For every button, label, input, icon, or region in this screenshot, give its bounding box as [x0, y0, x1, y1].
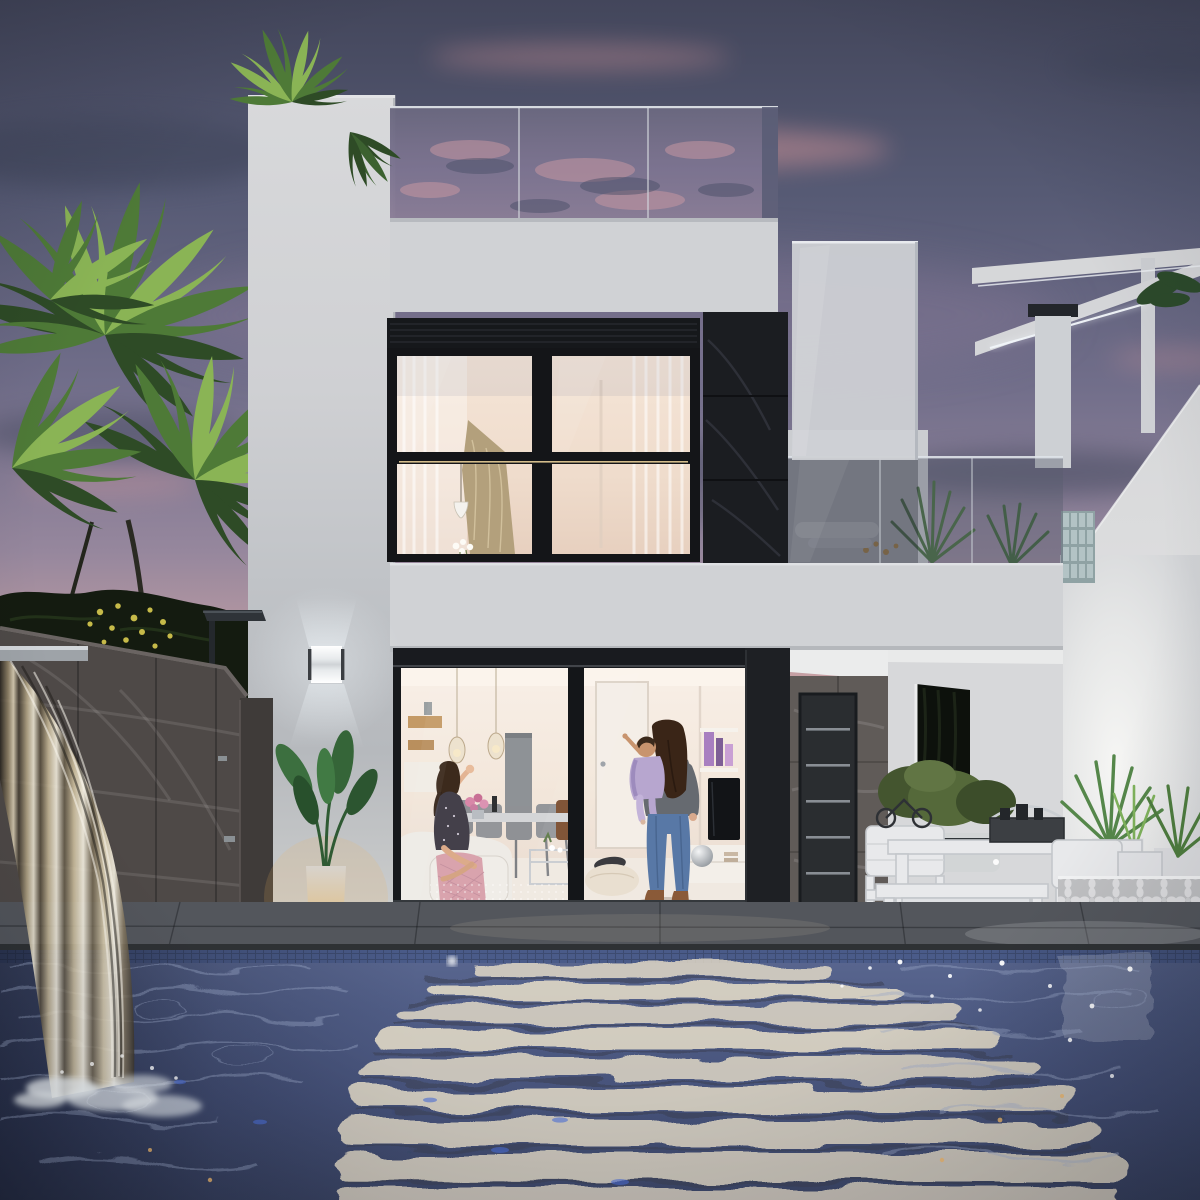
villa-dusk-render — [0, 0, 1200, 1200]
scene-canvas — [0, 0, 1200, 1200]
vignette — [0, 0, 1200, 1200]
